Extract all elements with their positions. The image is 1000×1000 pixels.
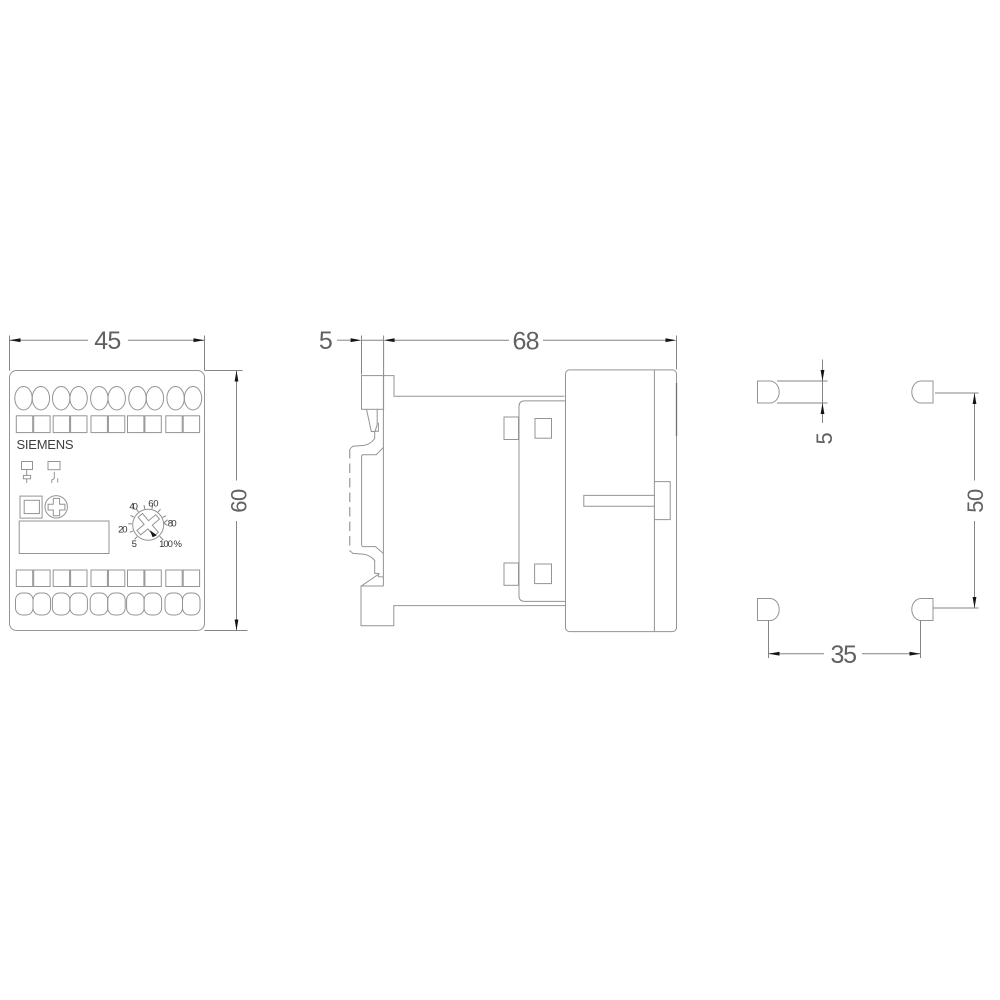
svg-text:68: 68 [513, 327, 540, 355]
svg-text:50: 50 [963, 489, 988, 513]
svg-text:60: 60 [226, 489, 251, 513]
svg-text:5: 5 [319, 327, 333, 355]
svg-text:60: 60 [148, 499, 158, 510]
svg-text:20: 20 [118, 524, 128, 535]
svg-text:45: 45 [94, 327, 121, 355]
svg-text:5: 5 [812, 432, 837, 444]
svg-text:SIEMENS: SIEMENS [17, 437, 74, 452]
svg-text:35: 35 [831, 641, 858, 669]
svg-text:40: 40 [129, 501, 138, 512]
svg-text:5: 5 [132, 539, 137, 550]
svg-text:100 %: 100 % [159, 539, 182, 550]
svg-text:80: 80 [168, 519, 177, 530]
